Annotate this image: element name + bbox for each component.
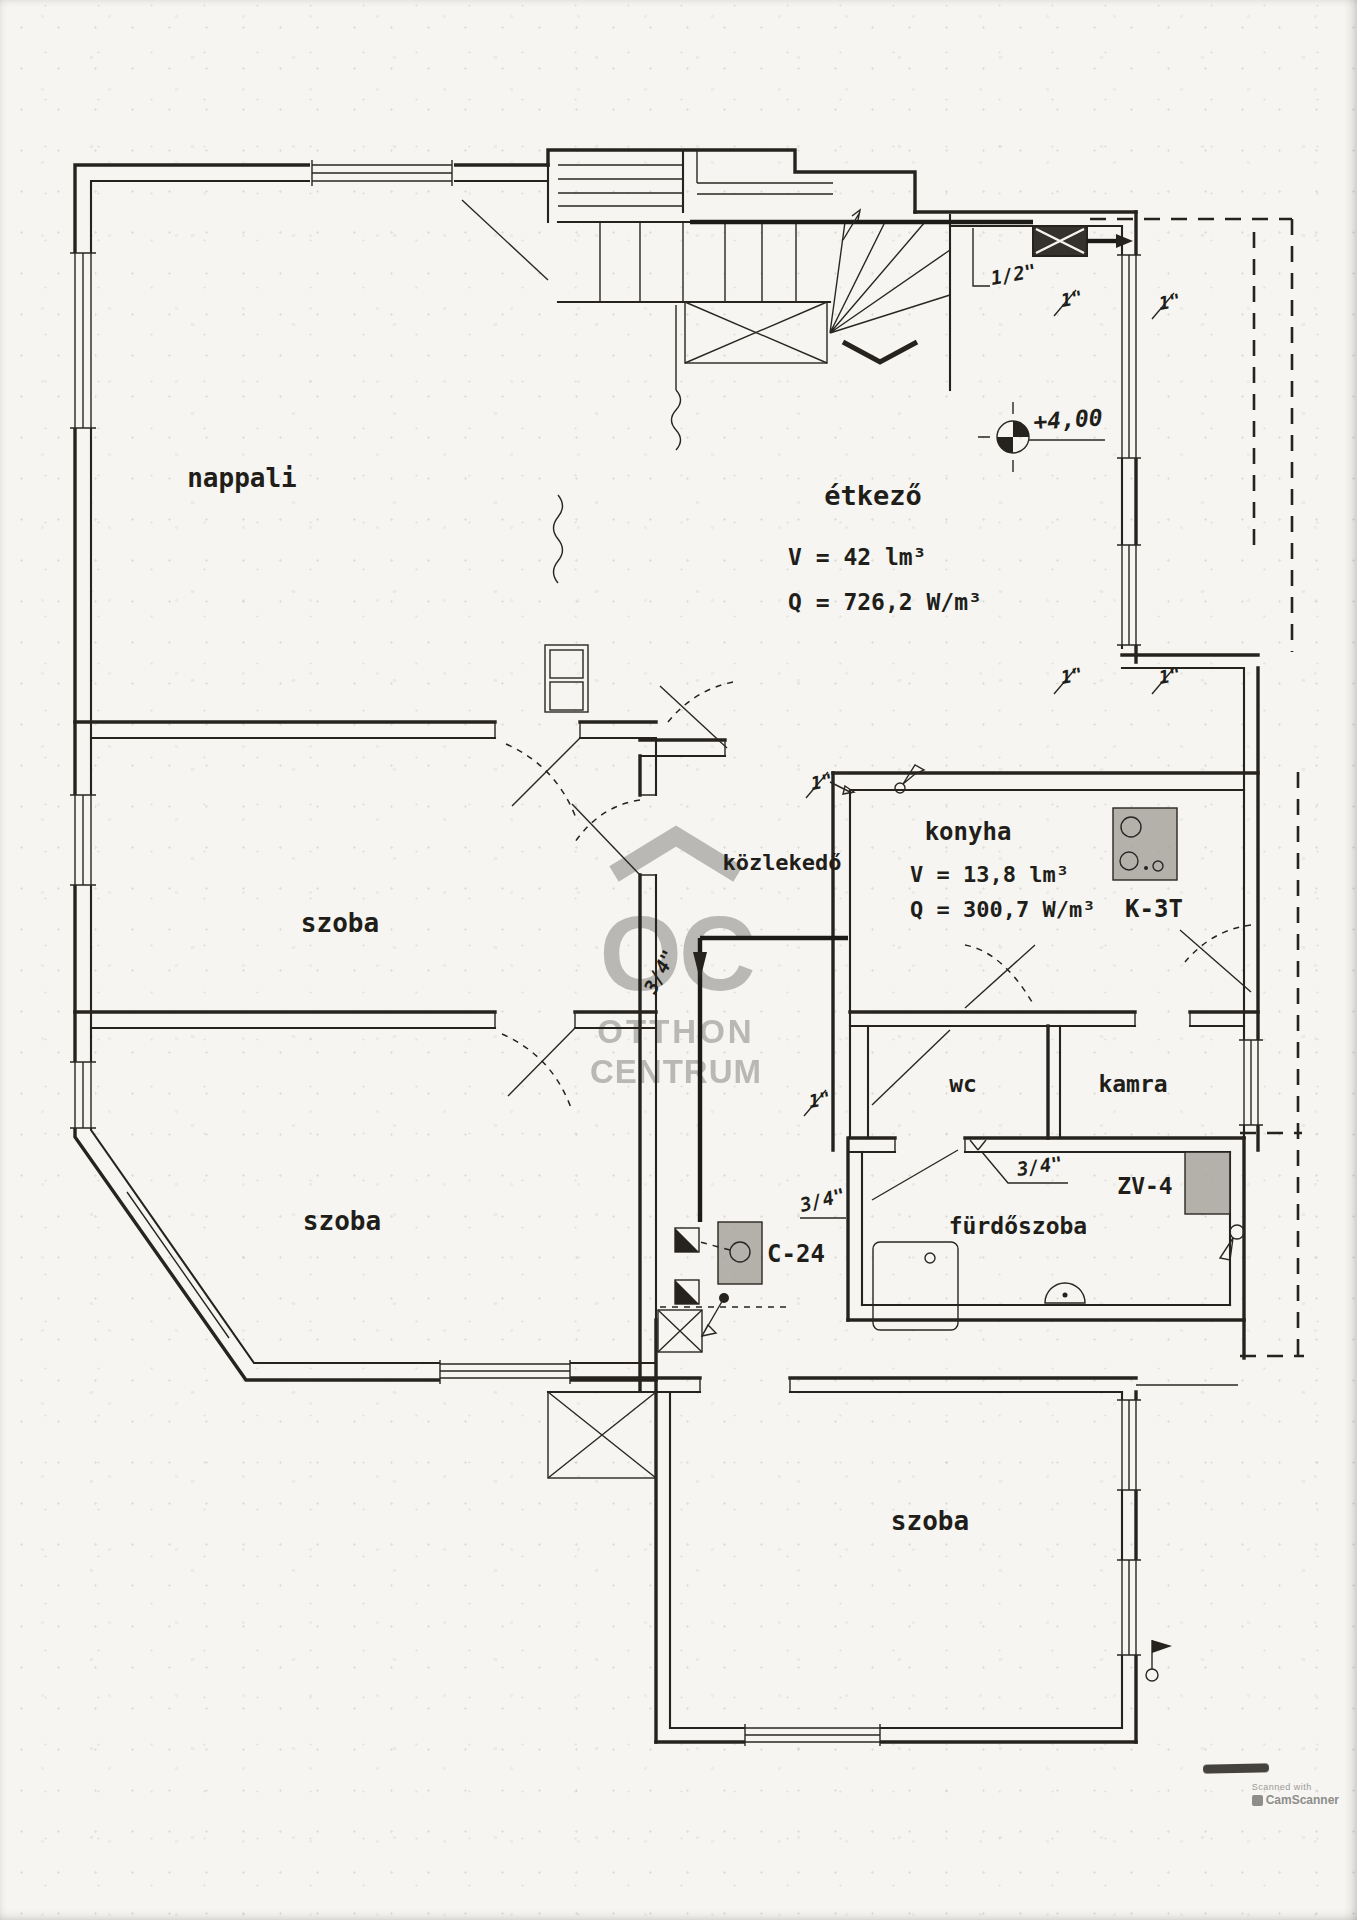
watermark-line1: OTTHON bbox=[597, 1013, 754, 1050]
camscanner-watermark: Scanned with CamScanner bbox=[1252, 1782, 1339, 1808]
scanned-floor-plan-page: OC OTTHON CENTRUM bbox=[0, 0, 1357, 1920]
scan-smudge bbox=[1203, 1763, 1269, 1773]
room-label-wc: wc bbox=[949, 1071, 977, 1097]
fixtures bbox=[675, 290, 1244, 1681]
konyha-heat: Q = 300,7 W/m³ bbox=[910, 897, 1095, 922]
pipe-size-three-quarter-a: 3/4" bbox=[1015, 1152, 1064, 1180]
bathtub-symbol bbox=[873, 1242, 958, 1330]
room-label-nappali: nappali bbox=[187, 463, 297, 493]
pipe-size-one-f: 1" bbox=[807, 1087, 832, 1111]
camscanner-logo-icon bbox=[1252, 1795, 1263, 1806]
valve-icon bbox=[895, 765, 924, 793]
pipe-size-one-e: 1" bbox=[809, 769, 834, 793]
room-label-szoba-1: szoba bbox=[301, 908, 379, 938]
etkezo-heat: Q = 726,2 W/m³ bbox=[788, 589, 982, 615]
radiator-label: C-24 bbox=[767, 1240, 825, 1268]
pipe-size-one-c: 1" bbox=[1059, 663, 1084, 687]
camscanner-prefix: Scanned with bbox=[1252, 1782, 1339, 1793]
room-label-kozlekedo: közlekedő bbox=[722, 850, 841, 875]
exterior-walls bbox=[75, 150, 1258, 1380]
stair-direction-arrow bbox=[843, 342, 917, 362]
watermark-initials: OC bbox=[600, 894, 753, 1012]
pipe-size-three-quarter-b: 3/4" bbox=[797, 1183, 848, 1216]
room-label-etkezo: étkező bbox=[824, 480, 922, 511]
staircase bbox=[462, 150, 950, 583]
stove-label: K-3T bbox=[1125, 895, 1183, 923]
level-annotation: +4,00 bbox=[1033, 404, 1104, 435]
camscanner-brand: CamScanner bbox=[1266, 1793, 1339, 1808]
etkezo-volume: V = 42 lm³ bbox=[788, 544, 926, 570]
valve-squares bbox=[675, 1228, 699, 1304]
floor-plan-drawing: OC OTTHON CENTRUM bbox=[0, 0, 1357, 1920]
water-heater-symbol bbox=[1185, 1152, 1244, 1260]
room-label-szoba-3: szoba bbox=[891, 1506, 969, 1536]
konyha-volume: V = 13,8 lm³ bbox=[910, 862, 1069, 887]
pipe-size-one-a: 1" bbox=[1059, 286, 1084, 310]
pipe-size-one-d: 1" bbox=[1157, 663, 1182, 687]
water-heater-label: ZV-4 bbox=[1117, 1173, 1172, 1199]
valve-flag-icon bbox=[1146, 1640, 1172, 1681]
washbasin-symbol bbox=[1045, 1283, 1085, 1303]
room-label-furdoszoba: fürdőszoba bbox=[949, 1213, 1087, 1239]
watermark-roof-icon bbox=[614, 836, 738, 874]
watermark-line2: CENTRUM bbox=[590, 1053, 762, 1090]
stove-symbol bbox=[1113, 808, 1177, 880]
pipe-size-half: 1/2" bbox=[989, 259, 1038, 289]
room-label-kamra: kamra bbox=[1098, 1071, 1167, 1097]
c24-heater-symbol bbox=[700, 1222, 762, 1336]
pipe-size-one-b: 1" bbox=[1157, 289, 1182, 313]
room-label-szoba-2: szoba bbox=[303, 1206, 381, 1236]
room-label-konyha: konyha bbox=[925, 818, 1012, 846]
